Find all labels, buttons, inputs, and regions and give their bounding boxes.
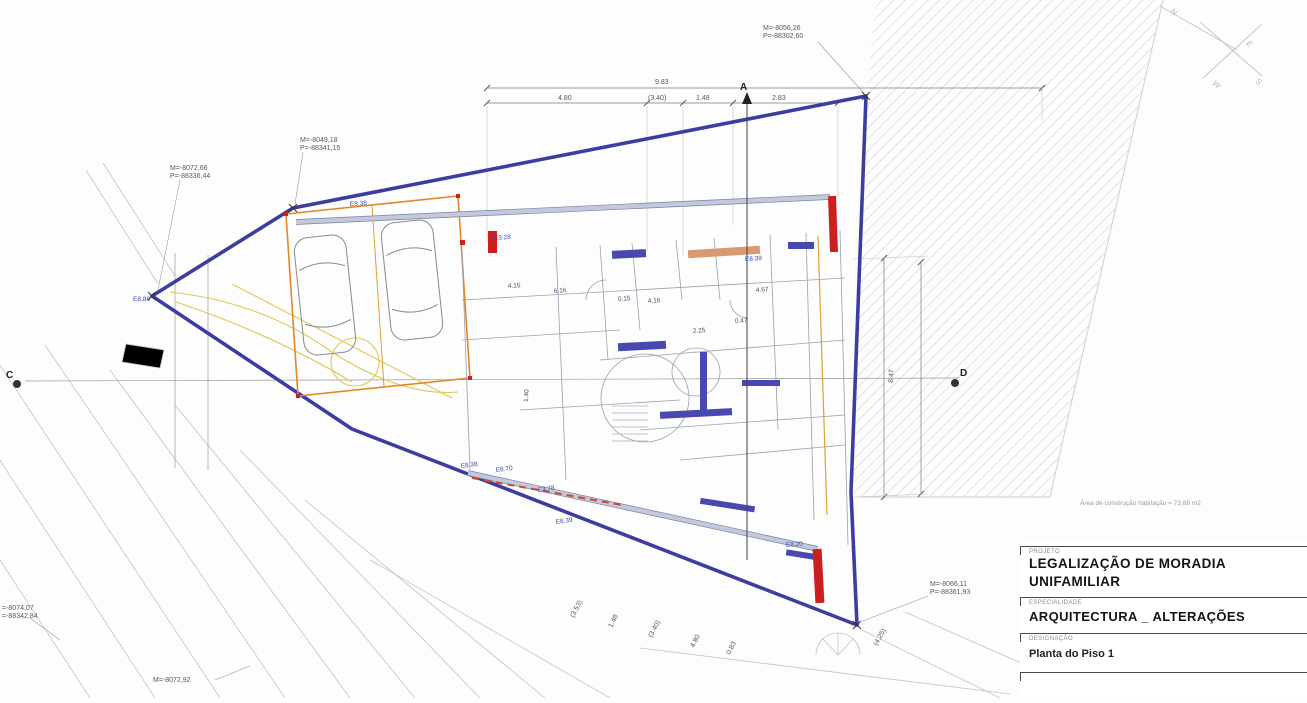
dim-label: 4.15 — [508, 282, 521, 290]
section-marker-a: A — [740, 82, 747, 93]
dim-bot-6: (4.25) — [873, 628, 888, 647]
coord-left-edge-m: =-8074,07 — [2, 605, 34, 612]
coord-bottom-right-m: M=-8066,11 — [930, 581, 967, 588]
coord-upper-left-p: P=-88341,15 — [300, 145, 340, 152]
designation-field-label: DESIGNAÇÃO — [1029, 636, 1307, 642]
dimension-labels-bottom: (3.53) 1.48 (3.40) 4.80 0.83 (4.25) — [570, 599, 888, 655]
title-block-specialty-section: ESPECIALIDADE ARQUITECTURA _ ALTERAÇÕES — [1020, 597, 1307, 624]
terrain-contours — [0, 163, 610, 698]
dim-top-1: 4.80 — [558, 95, 572, 102]
level-label: E8.39 — [745, 255, 763, 263]
level-label: E8.88 — [133, 296, 150, 303]
coord-bottom-left-m: M=-8072,92 — [153, 677, 191, 684]
dim-label: 4.67 — [756, 286, 769, 294]
coord-bottom-right-p: P=-88361,93 — [930, 589, 970, 596]
level-label: E8.70 — [495, 465, 513, 474]
dim-bot-3: (3.40) — [648, 619, 663, 638]
section-marker-d: D — [960, 368, 967, 379]
dim-label: 6.16 — [554, 287, 567, 295]
coord-top-right-m: M=-8056,26 — [763, 25, 801, 32]
dim-label: 1.40 — [523, 389, 530, 402]
coord-left-edge-p: =-88342,84 — [2, 613, 38, 620]
dim-bot-4: 4.80 — [690, 633, 702, 648]
level-label: E8.38 — [350, 200, 368, 208]
dim-top-3: 1.48 — [696, 95, 710, 102]
level-label: E3.28 — [494, 234, 512, 242]
compass-s-label: S — [1254, 77, 1264, 88]
construction-area-note: Área de construção habitação = 73,68 m2 — [1080, 500, 1201, 507]
road-lines-bottom-right — [640, 612, 1060, 698]
car-1 — [293, 234, 357, 357]
title-block-designation-section: DESIGNAÇÃO Planta do Piso 1 — [1020, 633, 1307, 660]
coord-left-m: M=-8072,66 — [170, 165, 208, 172]
dim-bot-5: 0.83 — [726, 640, 738, 655]
hatched-neighbour-area — [851, 0, 1163, 497]
dim-label: 4.16 — [648, 297, 661, 305]
dim-top-total: 9.83 — [655, 79, 669, 86]
dim-label: 2.25 — [693, 327, 706, 335]
coord-left-p: P=-88336,44 — [170, 173, 210, 180]
level-label: E8.39 — [555, 517, 573, 526]
dimension-lines-left — [175, 253, 208, 470]
level-label: E8.38 — [460, 461, 478, 470]
coord-top-right-p: P=-88302,60 — [763, 33, 803, 40]
property-boundary — [148, 92, 870, 629]
specialty-title: ARQUITECTURA _ ALTERAÇÕES — [1029, 609, 1307, 624]
title-block: PROJETO LEGALIZAÇÃO DE MORADIA UNIFAMILI… — [1020, 540, 1307, 698]
vehicle-path-arcs — [170, 284, 458, 398]
dim-bot-2: 1.48 — [608, 613, 620, 628]
title-block-footer-rule — [1020, 672, 1307, 685]
title-block-project-section: PROJETO LEGALIZAÇÃO DE MORADIA UNIFAMILI… — [1020, 546, 1307, 590]
compass-e-label: E — [1245, 39, 1255, 50]
level-label: E8.10 — [793, 242, 811, 250]
coord-upper-left-m: M=-8049,18 — [300, 137, 338, 144]
centerline-cd — [25, 378, 960, 381]
specialty-field-label: ESPECIALIDADE — [1029, 600, 1307, 606]
dim-right-vertical: 8.47 — [888, 369, 896, 383]
project-title-line2: UNIFAMILIAR — [1029, 573, 1307, 591]
dim-bot-1: (3.53) — [570, 599, 585, 618]
compass-w-label: W — [1211, 79, 1224, 92]
architectural-drawing-page: { "coords": { "top_right": {"m": "M=-805… — [0, 0, 1307, 698]
project-title-line1: LEGALIZAÇÃO DE MORADIA — [1029, 555, 1307, 573]
car-2 — [380, 219, 444, 342]
dim-top-4: 2.83 — [772, 95, 786, 102]
dim-label: 0.15 — [618, 295, 631, 303]
dim-label: 0.47 — [735, 317, 748, 325]
drawing-designation: Planta do Piso 1 — [1029, 648, 1307, 660]
compass-rose: N E W S — [1160, 6, 1264, 91]
section-marker-c: C — [6, 370, 13, 381]
dim-top-2: (3.40) — [648, 95, 666, 102]
